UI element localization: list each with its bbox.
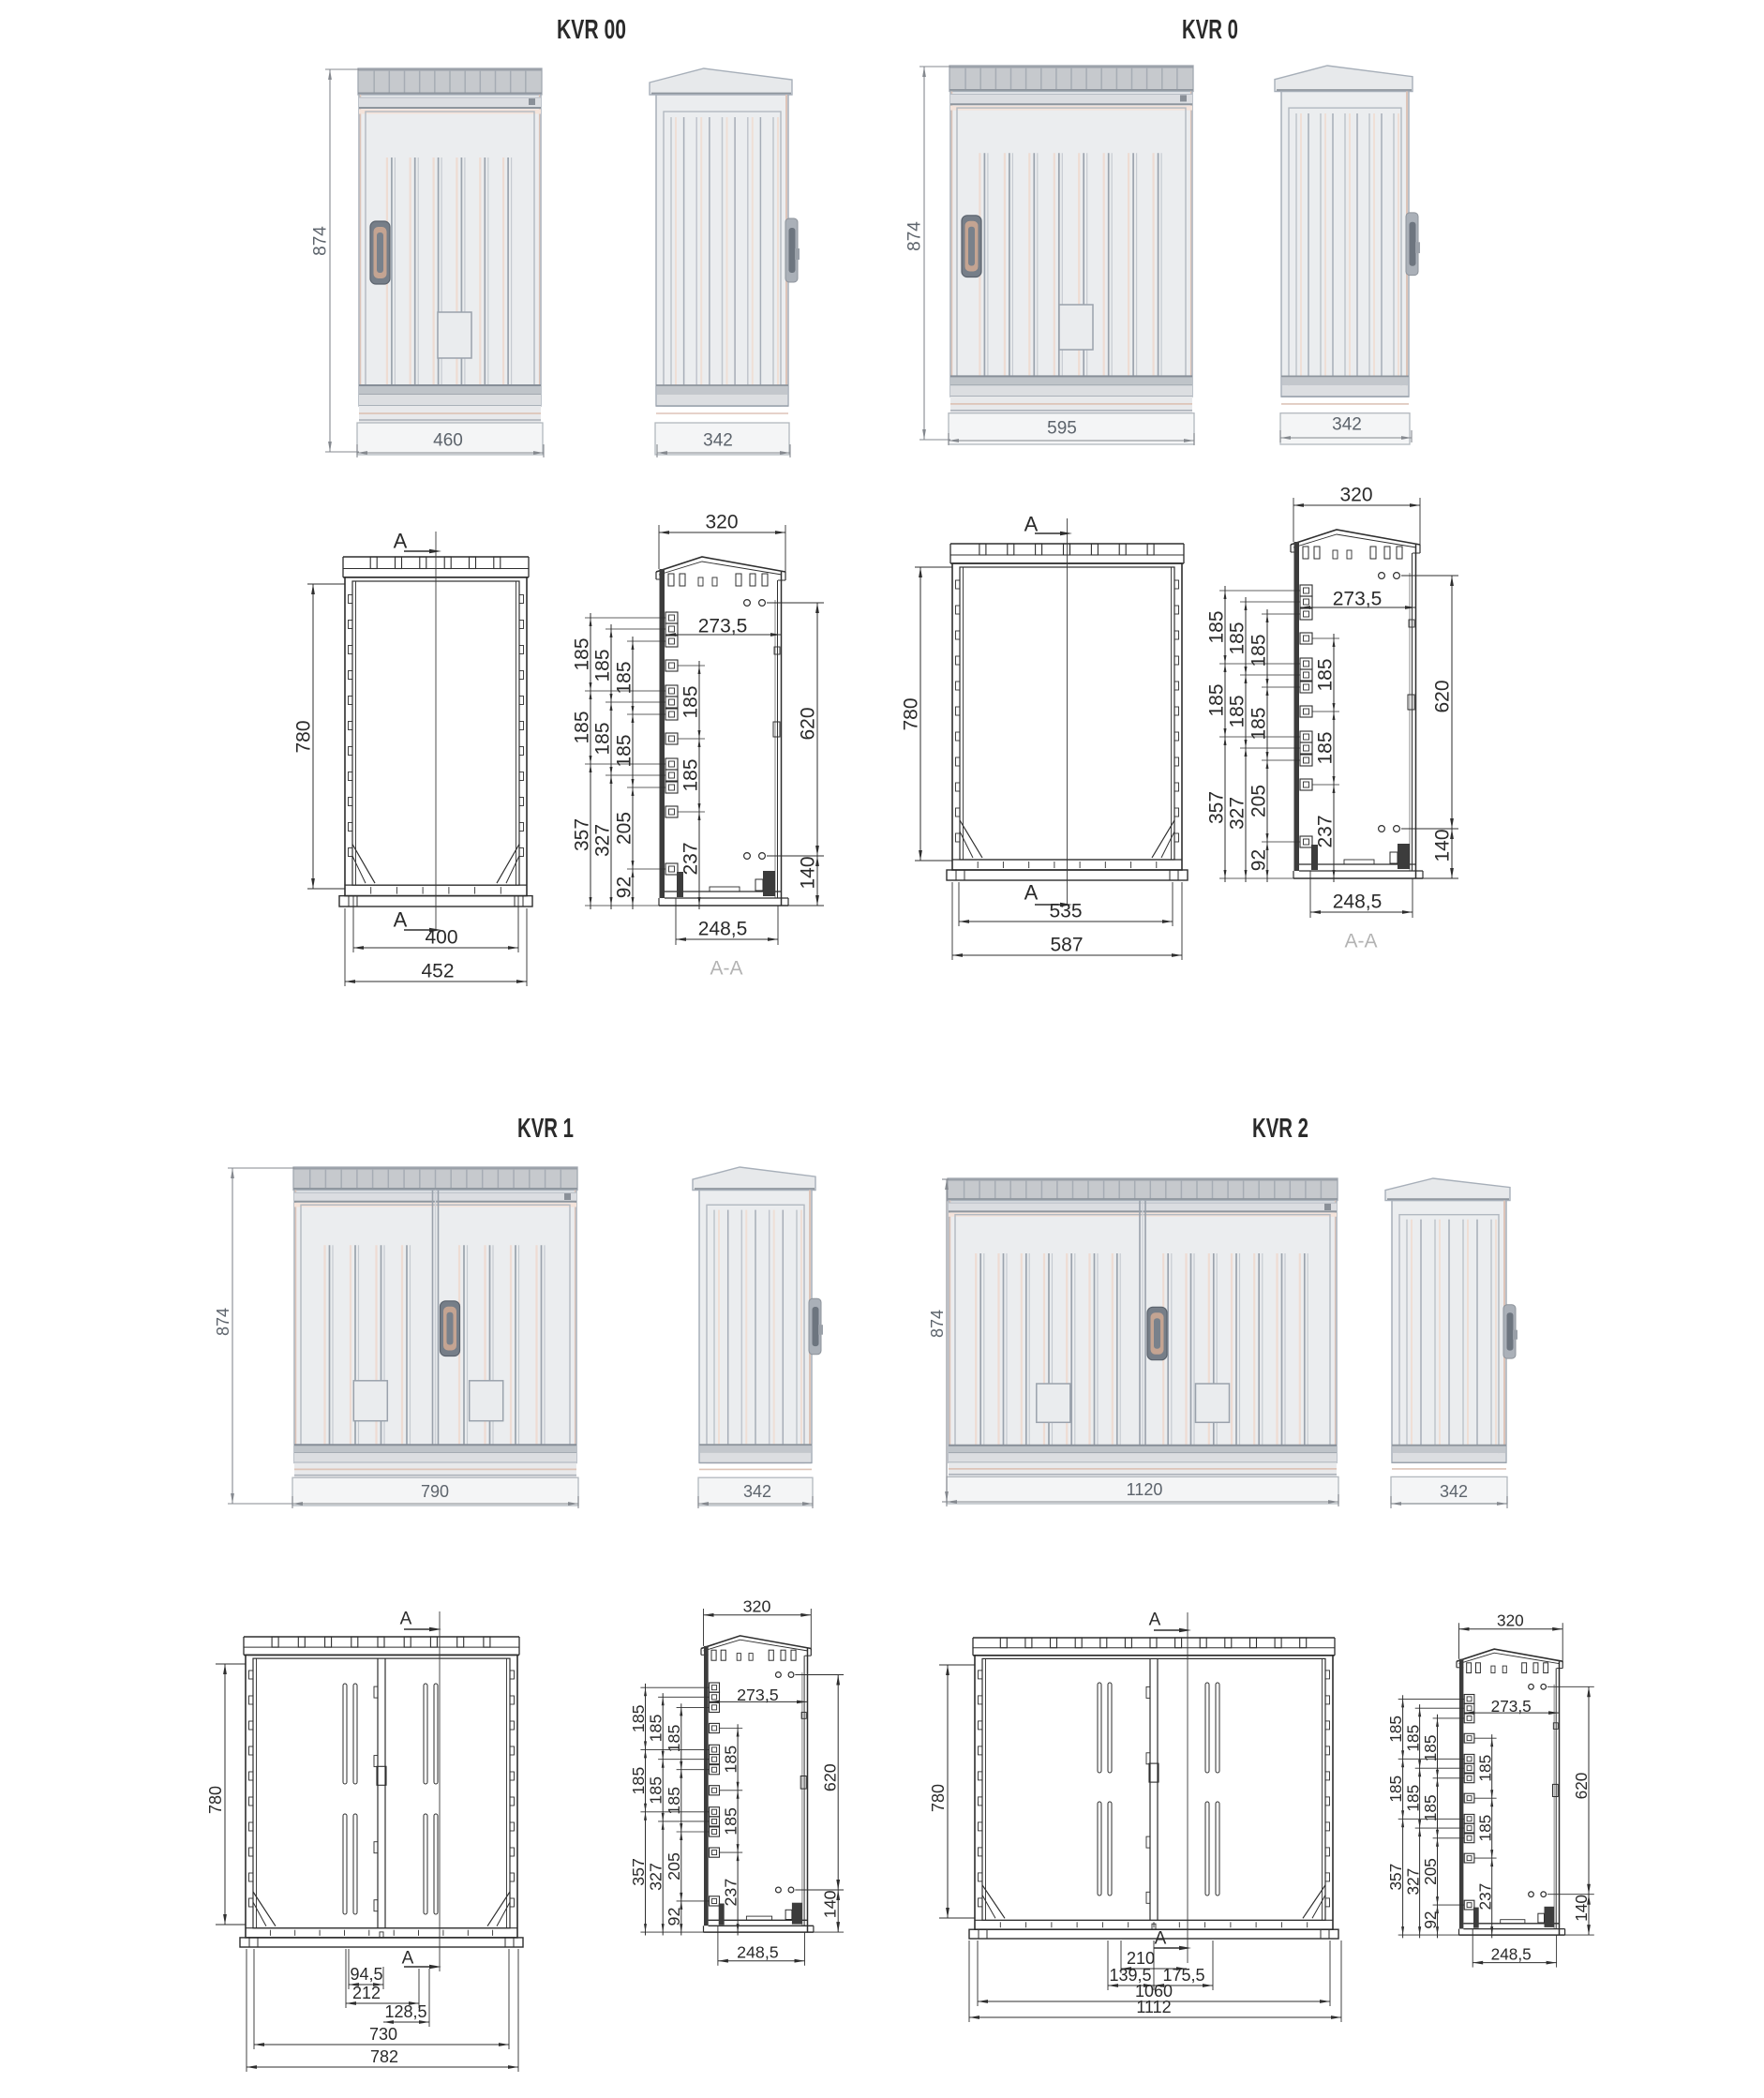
svg-text:KVR 0: KVR 0 (1182, 15, 1238, 45)
svg-text:342: 342 (743, 1482, 771, 1501)
svg-text:185: 185 (1315, 658, 1337, 691)
svg-text:205: 205 (614, 812, 635, 845)
svg-text:273,5: 273,5 (1491, 1697, 1532, 1716)
svg-text:874: 874 (311, 226, 331, 256)
svg-text:237: 237 (680, 842, 702, 875)
svg-text:A: A (1149, 1611, 1161, 1630)
svg-text:A: A (1024, 881, 1039, 905)
svg-text:185: 185 (592, 722, 614, 755)
svg-text:874: 874 (905, 221, 925, 251)
svg-text:205: 205 (665, 1852, 683, 1881)
svg-text:185: 185 (1475, 1815, 1494, 1842)
svg-text:452: 452 (421, 961, 454, 982)
svg-text:248,5: 248,5 (1491, 1945, 1532, 1964)
svg-text:327: 327 (592, 824, 614, 857)
svg-text:320: 320 (705, 512, 738, 533)
svg-text:320: 320 (1339, 485, 1372, 506)
svg-text:185: 185 (1403, 1785, 1422, 1812)
svg-text:1120: 1120 (1127, 1480, 1163, 1499)
svg-text:620: 620 (798, 707, 819, 740)
svg-text:730: 730 (369, 2025, 397, 2044)
svg-text:A-A: A-A (1344, 931, 1377, 952)
svg-text:595: 595 (1047, 419, 1077, 439)
svg-text:210: 210 (1127, 1949, 1155, 1968)
svg-text:327: 327 (1227, 797, 1248, 830)
svg-text:A: A (400, 1610, 412, 1629)
svg-text:342: 342 (1440, 1482, 1468, 1501)
svg-text:460: 460 (433, 431, 463, 451)
svg-text:535: 535 (1049, 901, 1082, 922)
svg-text:185: 185 (1206, 610, 1228, 643)
svg-text:1112: 1112 (1136, 1998, 1171, 2016)
svg-text:357: 357 (1386, 1864, 1405, 1891)
svg-text:185: 185 (1403, 1725, 1422, 1752)
svg-text:A: A (394, 908, 408, 932)
svg-text:A: A (394, 530, 408, 553)
svg-text:185: 185 (614, 734, 635, 767)
svg-text:782: 782 (370, 2047, 398, 2066)
svg-text:248,5: 248,5 (1333, 892, 1383, 913)
svg-text:140: 140 (821, 1890, 840, 1918)
svg-text:620: 620 (1572, 1773, 1591, 1800)
svg-text:620: 620 (821, 1763, 840, 1791)
svg-text:KVR 1: KVR 1 (517, 1114, 574, 1144)
svg-text:790: 790 (421, 1482, 449, 1501)
svg-text:248,5: 248,5 (698, 919, 748, 940)
svg-text:185: 185 (647, 1715, 665, 1743)
svg-text:185: 185 (629, 1767, 648, 1795)
svg-text:248,5: 248,5 (737, 1942, 779, 1961)
svg-text:237: 237 (1475, 1883, 1494, 1911)
svg-text:357: 357 (1206, 791, 1228, 824)
svg-text:185: 185 (721, 1807, 740, 1836)
svg-text:140: 140 (1572, 1895, 1591, 1922)
svg-text:185: 185 (1475, 1755, 1494, 1782)
svg-text:357: 357 (572, 818, 593, 851)
svg-text:874: 874 (928, 1310, 947, 1338)
svg-text:92: 92 (614, 877, 635, 898)
svg-text:185: 185 (680, 685, 702, 718)
svg-text:273,5: 273,5 (1333, 589, 1383, 610)
svg-text:205: 205 (1421, 1858, 1440, 1885)
svg-text:185: 185 (1248, 634, 1270, 667)
svg-text:185: 185 (572, 711, 593, 743)
svg-text:185: 185 (1227, 695, 1248, 727)
svg-text:237: 237 (721, 1879, 740, 1907)
svg-text:342: 342 (1332, 415, 1362, 435)
svg-text:237: 237 (1315, 815, 1337, 847)
svg-text:185: 185 (647, 1776, 665, 1805)
svg-text:185: 185 (665, 1787, 683, 1815)
svg-text:185: 185 (1227, 622, 1248, 654)
svg-text:205: 205 (1248, 785, 1270, 817)
svg-text:185: 185 (1315, 731, 1337, 764)
svg-text:185: 185 (572, 637, 593, 670)
svg-text:357: 357 (629, 1858, 648, 1886)
svg-text:A: A (1024, 513, 1039, 536)
svg-text:620: 620 (1432, 680, 1454, 712)
svg-text:92: 92 (1248, 849, 1270, 871)
svg-text:185: 185 (1386, 1776, 1405, 1803)
svg-text:185: 185 (721, 1746, 740, 1774)
svg-text:327: 327 (1403, 1868, 1422, 1896)
svg-text:780: 780 (293, 720, 315, 753)
svg-text:185: 185 (1386, 1716, 1405, 1743)
svg-text:KVR 2: KVR 2 (1252, 1114, 1308, 1144)
svg-text:320: 320 (1497, 1611, 1524, 1630)
svg-text:342: 342 (703, 431, 733, 451)
svg-text:92: 92 (665, 1908, 683, 1926)
svg-text:780: 780 (901, 697, 922, 730)
svg-text:140: 140 (1432, 829, 1454, 862)
svg-text:A: A (402, 1949, 414, 1969)
svg-text:780: 780 (206, 1786, 225, 1814)
svg-text:273,5: 273,5 (698, 616, 748, 637)
svg-text:A-A: A-A (710, 958, 742, 980)
svg-text:185: 185 (680, 758, 702, 791)
svg-text:185: 185 (592, 649, 614, 682)
svg-text:212: 212 (352, 1984, 381, 2002)
svg-text:320: 320 (743, 1597, 771, 1616)
svg-text:140: 140 (798, 856, 819, 889)
svg-text:A: A (1155, 1929, 1167, 1949)
svg-text:273,5: 273,5 (737, 1686, 779, 1704)
svg-text:KVR 00: KVR 00 (557, 15, 626, 45)
svg-text:327: 327 (647, 1863, 665, 1891)
svg-text:185: 185 (665, 1725, 683, 1753)
svg-text:780: 780 (929, 1784, 948, 1812)
svg-text:185: 185 (1421, 1794, 1440, 1821)
svg-text:128,5: 128,5 (384, 2002, 426, 2021)
svg-text:92: 92 (1421, 1911, 1440, 1929)
svg-text:185: 185 (1206, 683, 1228, 716)
svg-text:874: 874 (214, 1308, 232, 1336)
svg-text:185: 185 (629, 1704, 648, 1732)
svg-text:185: 185 (614, 661, 635, 694)
svg-text:94,5: 94,5 (350, 1965, 382, 1984)
svg-text:185: 185 (1248, 707, 1270, 740)
svg-text:185: 185 (1421, 1735, 1440, 1762)
svg-text:400: 400 (425, 927, 457, 949)
svg-text:587: 587 (1050, 935, 1083, 956)
